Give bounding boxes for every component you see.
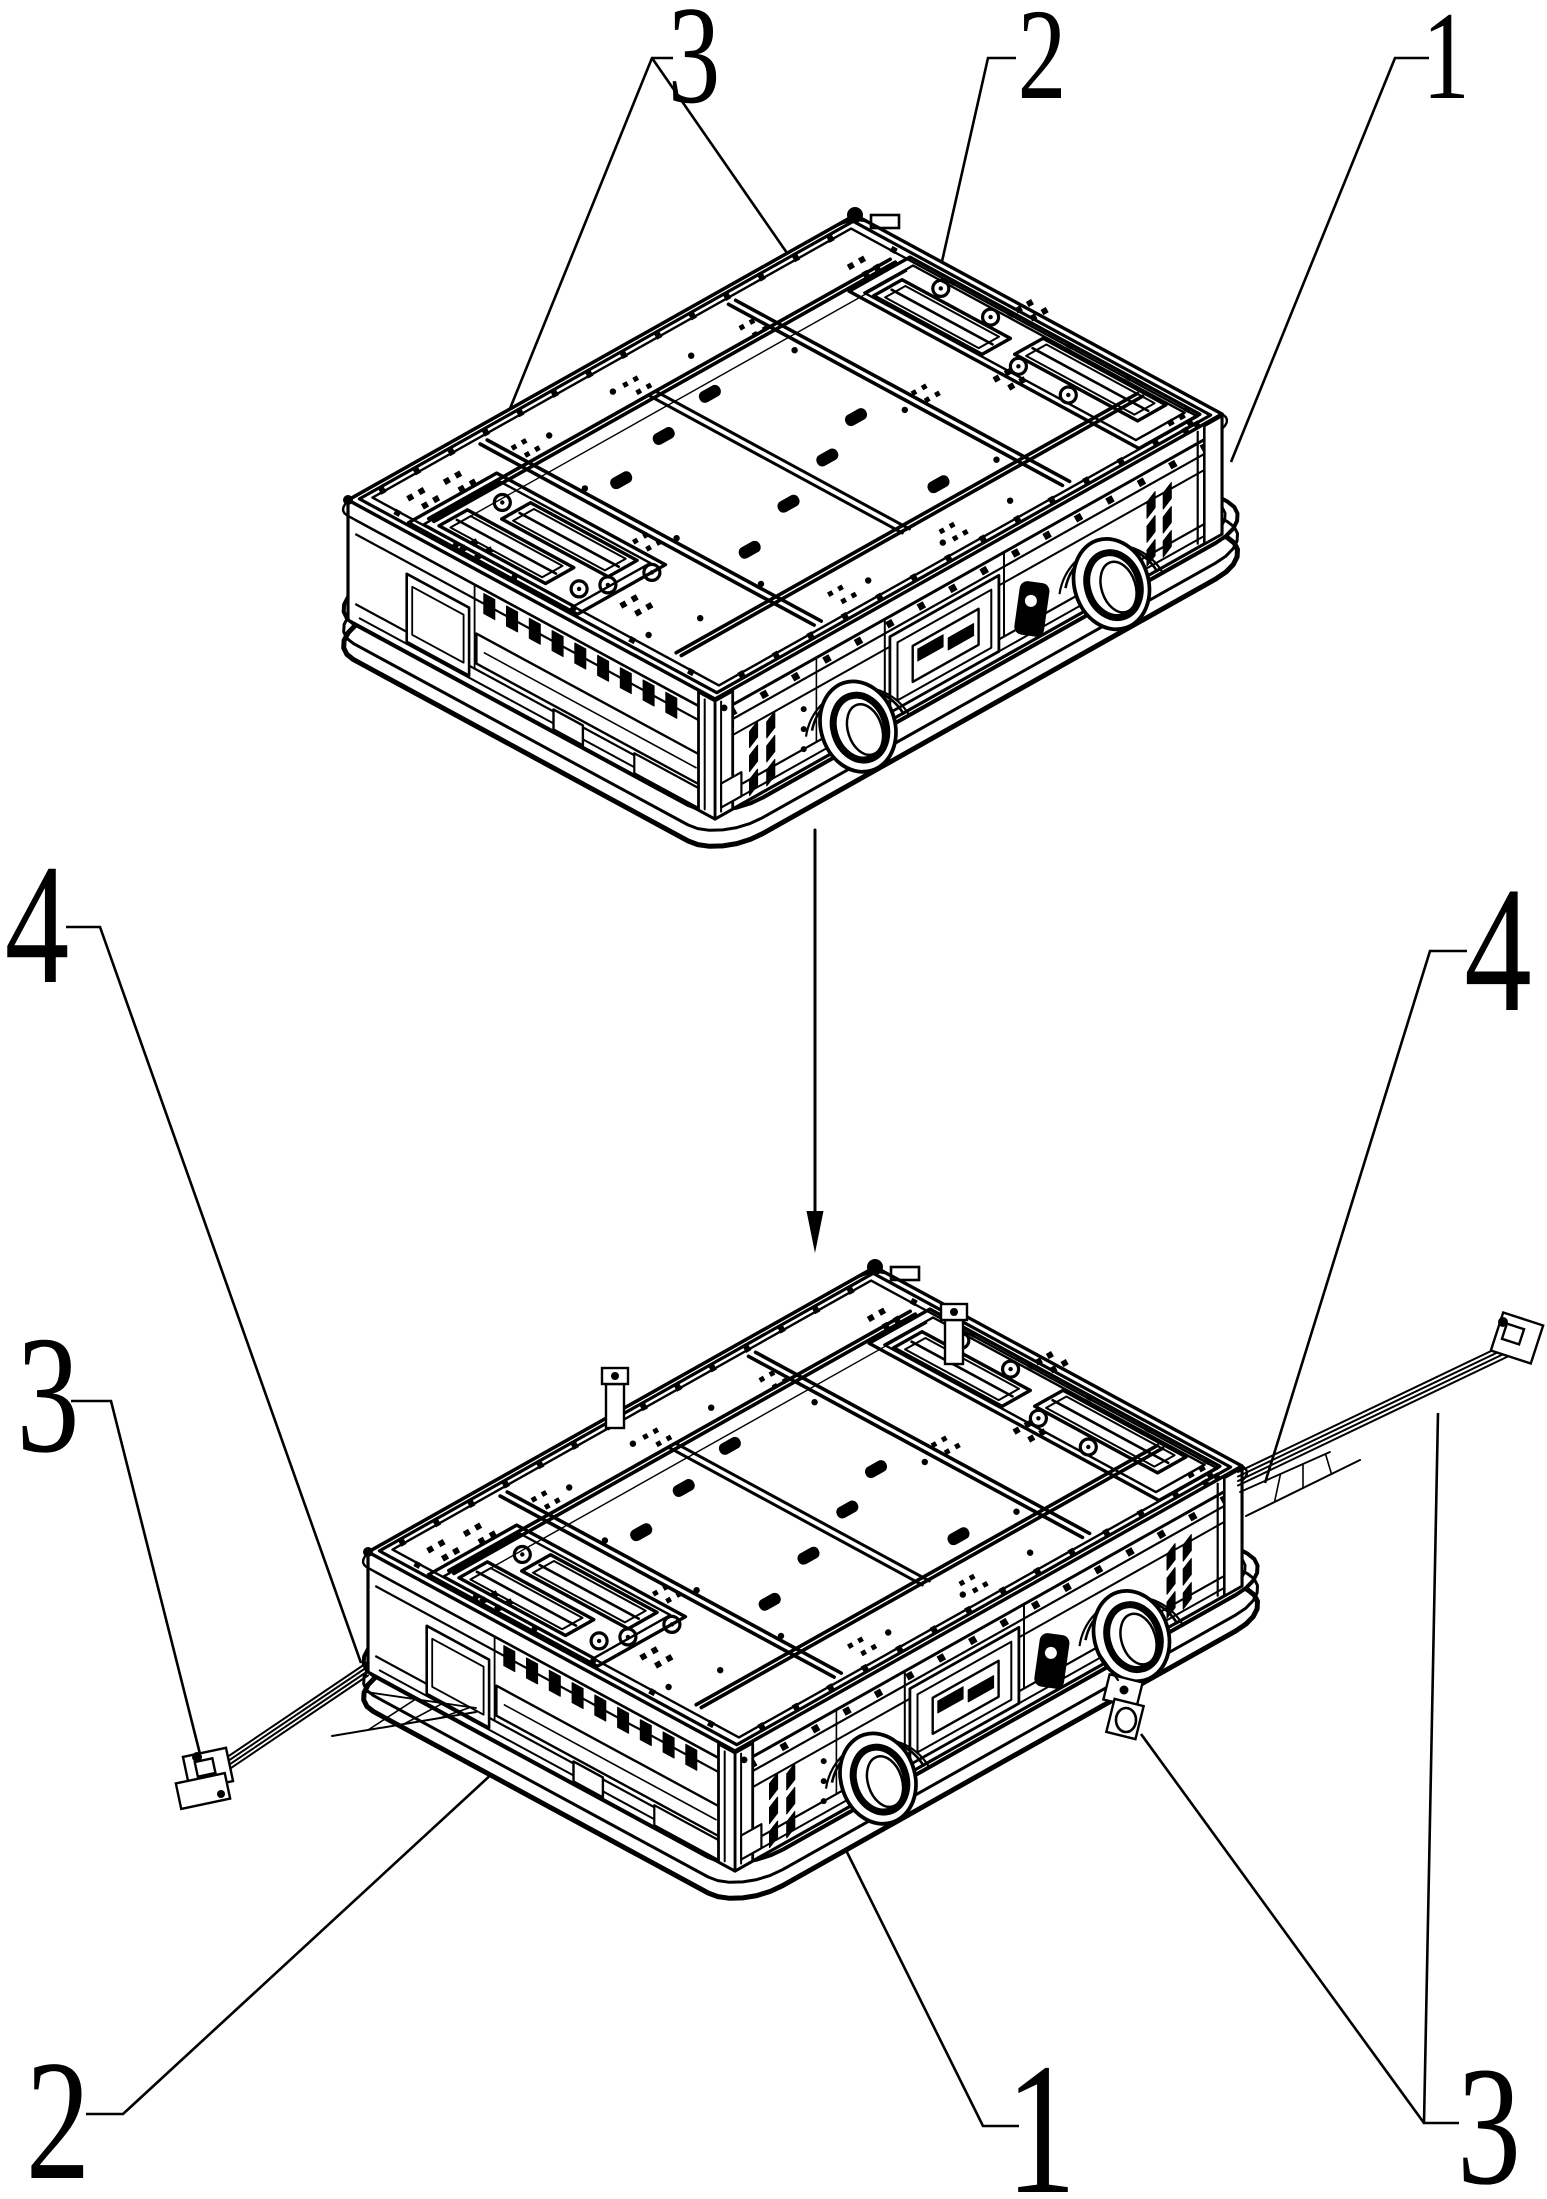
svg-text:4: 4 bbox=[1464, 850, 1531, 1049]
svg-text:1: 1 bbox=[1422, 0, 1469, 126]
svg-text:1: 1 bbox=[1006, 2025, 1076, 2194]
svg-text:2: 2 bbox=[1018, 0, 1067, 126]
svg-text:3: 3 bbox=[1457, 2031, 1521, 2194]
svg-text:3: 3 bbox=[668, 0, 721, 133]
svg-text:4: 4 bbox=[5, 829, 70, 1019]
svg-text:3: 3 bbox=[16, 1303, 79, 1489]
svg-text:2: 2 bbox=[26, 2025, 91, 2194]
